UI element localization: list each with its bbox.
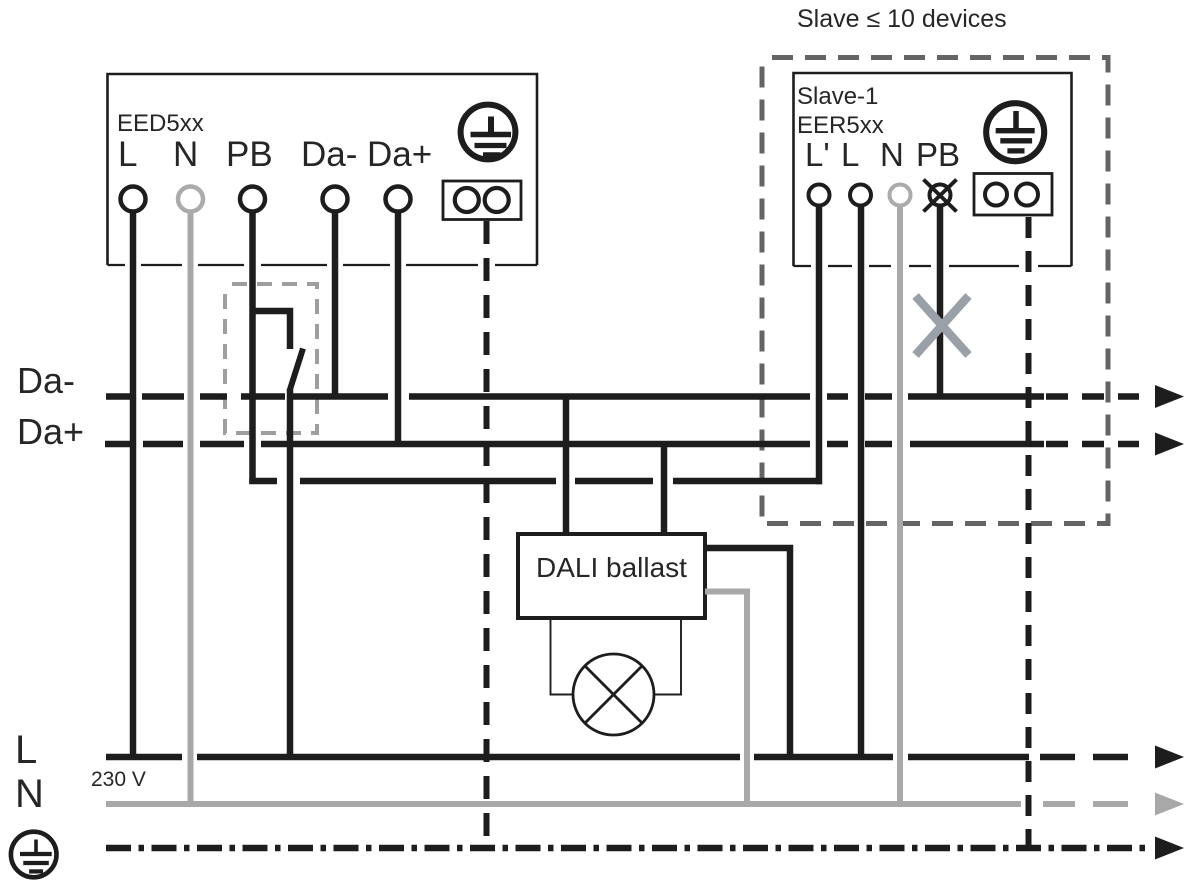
svg-text:Da-: Da- (17, 360, 75, 401)
svg-text:L': L' (805, 136, 830, 173)
svg-text:PB: PB (226, 135, 273, 174)
svg-text:Da-: Da- (301, 135, 357, 174)
svg-text:N: N (15, 772, 44, 816)
svg-text:N: N (880, 136, 904, 173)
svg-text:L: L (118, 135, 137, 174)
svg-text:PB: PB (916, 136, 960, 173)
svg-text:Da+: Da+ (17, 411, 84, 452)
svg-text:L: L (15, 728, 37, 772)
svg-text:Slave ≤ 10 devices: Slave ≤ 10 devices (797, 5, 1007, 33)
svg-text:N: N (173, 135, 198, 174)
svg-text:L: L (841, 136, 859, 173)
svg-text:Slave-1: Slave-1 (797, 83, 878, 110)
svg-text:EED5xx: EED5xx (117, 110, 204, 137)
svg-text:DALI ballast: DALI ballast (536, 552, 687, 583)
svg-text:EER5xx: EER5xx (797, 112, 884, 139)
svg-text:Da+: Da+ (367, 135, 432, 174)
svg-text:230 V: 230 V (91, 768, 146, 791)
